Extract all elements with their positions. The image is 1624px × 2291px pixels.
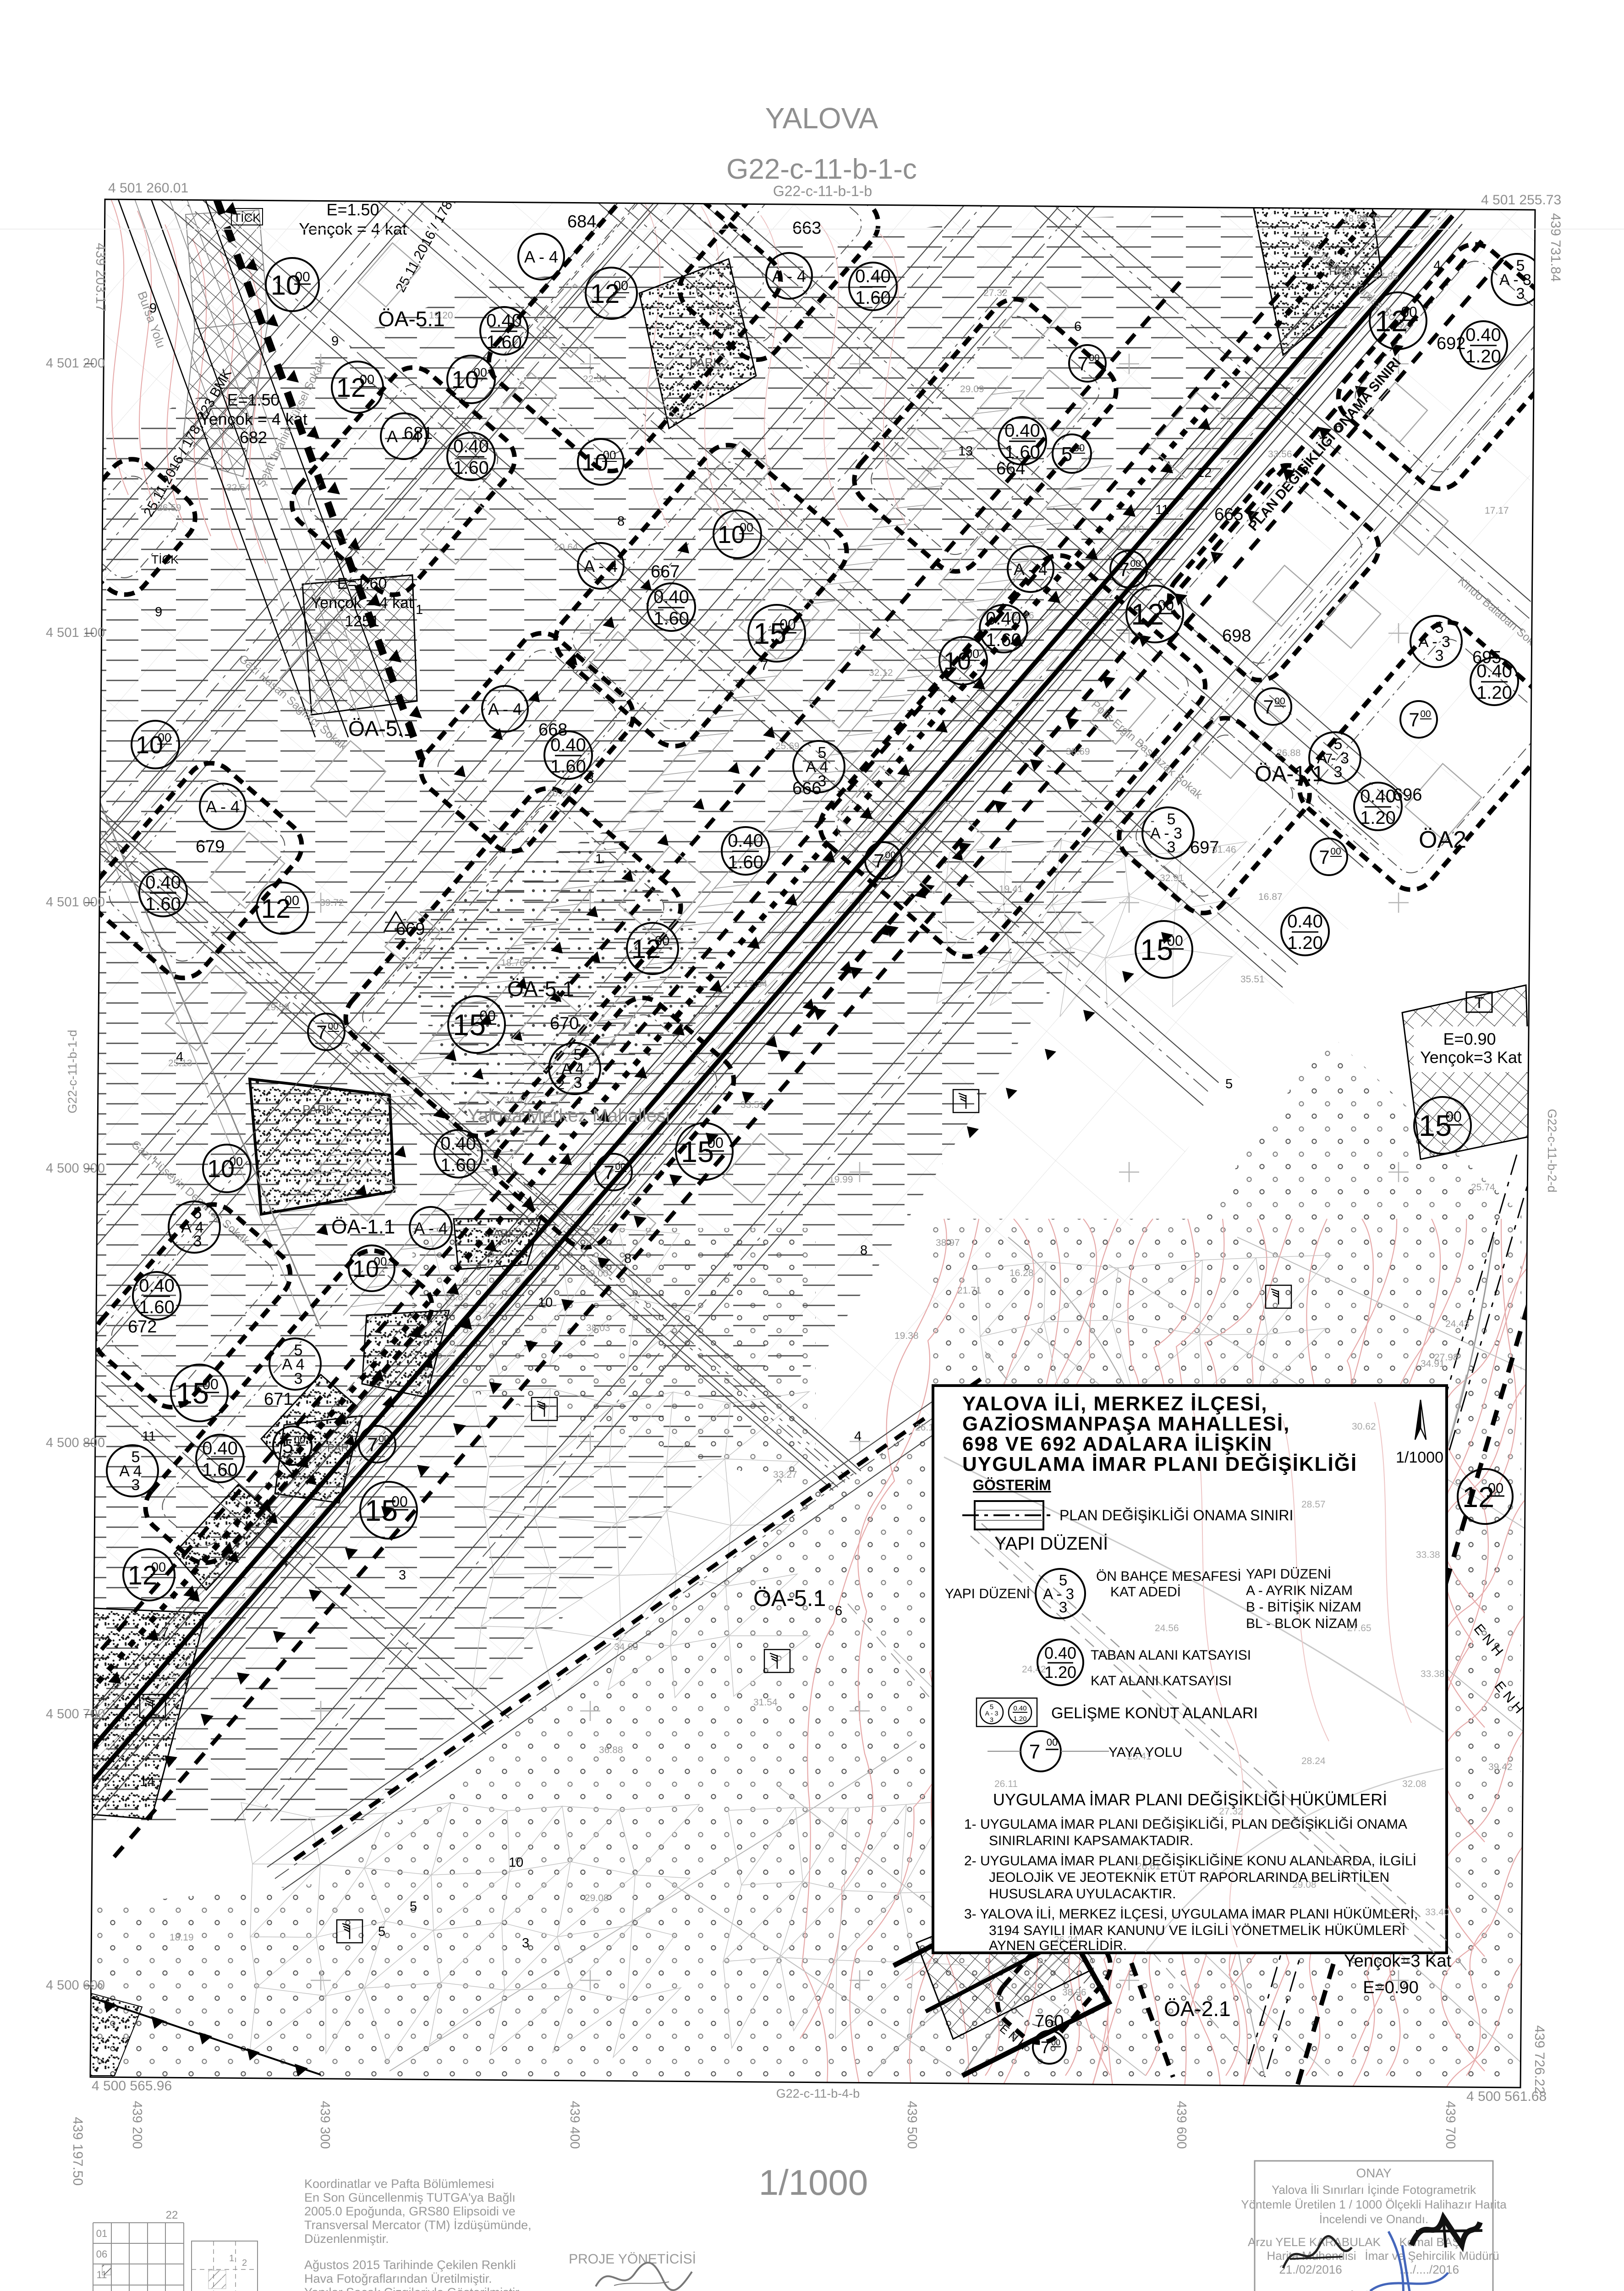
svg-text:3: 3 — [818, 773, 827, 790]
svg-text:00: 00 — [379, 1434, 389, 1444]
svg-text:29.09: 29.09 — [960, 384, 984, 395]
svg-text:21./02/2016: 21./02/2016 — [1279, 2263, 1342, 2276]
svg-text:Ağustos 2015 Tarihinde Çekilen: Ağustos 2015 Tarihinde Çekilen Renkli — [304, 2258, 516, 2272]
svg-text:A - 4: A - 4 — [387, 427, 421, 446]
svg-text:0.40: 0.40 — [145, 872, 181, 893]
svg-text:4 501 260.01: 4 501 260.01 — [108, 181, 188, 196]
svg-text:33.51: 33.51 — [741, 1100, 765, 1110]
svg-text:3: 3 — [1435, 647, 1444, 664]
svg-text:14: 14 — [140, 1775, 154, 1789]
svg-text:12: 12 — [1197, 466, 1212, 480]
svg-text:KAT ADEDİ: KAT ADEDİ — [1110, 1584, 1181, 1600]
svg-text:A - 4: A - 4 — [488, 700, 522, 718]
svg-text:YALOVA: YALOVA — [765, 102, 878, 135]
svg-text:ÖA-2.1: ÖA-2.1 — [1164, 1997, 1231, 2021]
svg-text:679: 679 — [196, 837, 225, 856]
svg-text:439 300: 439 300 — [318, 2101, 332, 2149]
svg-text:0.40: 0.40 — [1476, 661, 1512, 681]
svg-text:T: T — [1475, 994, 1484, 1012]
svg-text:A - 4: A - 4 — [206, 797, 240, 816]
svg-text:İmar ve Şehircilik Müdürü: İmar ve Şehircilik Müdürü — [1365, 2249, 1499, 2263]
svg-text:PARK: PARK — [302, 1102, 335, 1116]
svg-text:11: 11 — [142, 1429, 156, 1444]
svg-text:1.60: 1.60 — [202, 1460, 238, 1480]
svg-text:32.91: 32.91 — [1160, 873, 1184, 883]
svg-text:33.38: 33.38 — [1416, 1550, 1440, 1560]
svg-text:00: 00 — [1167, 932, 1183, 949]
svg-text:34.73: 34.73 — [1120, 524, 1144, 535]
svg-text:3: 3 — [294, 1370, 303, 1387]
svg-text:4 500 565.96: 4 500 565.96 — [92, 2078, 172, 2094]
svg-text:00: 00 — [479, 1008, 496, 1024]
svg-text:1.60: 1.60 — [1004, 442, 1040, 462]
svg-text:Yençok = 4 kat: Yençok = 4 kat — [199, 410, 307, 428]
svg-text:38.69: 38.69 — [1066, 746, 1090, 757]
svg-text:YAPI DÜZENİ: YAPI DÜZENİ — [1246, 1567, 1331, 1582]
svg-text:16.87: 16.87 — [1258, 892, 1283, 902]
svg-text:5: 5 — [1061, 443, 1072, 466]
svg-text:439 203.17: 439 203.17 — [93, 243, 108, 312]
svg-text:6: 6 — [1074, 319, 1081, 334]
svg-text:10: 10 — [509, 1855, 523, 1870]
svg-text:20.64: 20.64 — [554, 542, 578, 553]
svg-text:3: 3 — [399, 1568, 406, 1583]
svg-text:Yöntemle Üretilen 1 / 1000 Öl: Yöntemle Üretilen 1 / 1000 Ölçekli Halih… — [1241, 2198, 1507, 2211]
svg-text:663: 663 — [792, 219, 821, 238]
svg-text:7: 7 — [604, 1162, 614, 1183]
svg-text:1.20: 1.20 — [1044, 1663, 1076, 1682]
svg-text:HUSUSLARA UYULACAKTIR.: HUSUSLARA UYULACAKTIR. — [989, 1886, 1176, 1902]
svg-text:00: 00 — [374, 1255, 387, 1268]
svg-text:YAPI DÜZENİ: YAPI DÜZENİ — [994, 1533, 1108, 1554]
svg-text:1251: 1251 — [345, 613, 379, 630]
svg-text:G22-c-11-b-1-d: G22-c-11-b-1-d — [66, 1030, 79, 1113]
svg-text:19.41: 19.41 — [999, 884, 1023, 894]
svg-text:9: 9 — [149, 301, 157, 316]
svg-text:PROJE YÖNETİCİSİ: PROJE YÖNETİCİSİ — [569, 2252, 696, 2267]
svg-text:696: 696 — [1393, 785, 1422, 805]
svg-text:Yençok=3 Kat: Yençok=3 Kat — [1420, 1048, 1522, 1067]
svg-text:00: 00 — [603, 448, 616, 462]
svg-text:7: 7 — [316, 1021, 327, 1043]
svg-text:0.40: 0.40 — [1287, 911, 1323, 932]
svg-text:669: 669 — [396, 920, 425, 939]
svg-text:00: 00 — [1401, 304, 1417, 320]
svg-text:1.60: 1.60 — [145, 894, 181, 914]
svg-text:00: 00 — [1074, 442, 1085, 454]
svg-text:24.56: 24.56 — [1155, 1623, 1179, 1633]
svg-text:27.85: 27.85 — [1374, 271, 1399, 282]
svg-text:3: 3 — [1334, 763, 1343, 781]
svg-text:24.42: 24.42 — [1022, 1664, 1046, 1675]
svg-text:A - 3: A - 3 — [1499, 271, 1531, 289]
svg-text:B - BİTİŞİK NİZAM: B - BİTİŞİK NİZAM — [1246, 1600, 1361, 1615]
svg-text:A - AYRIK NİZAM: A - AYRIK NİZAM — [1246, 1583, 1353, 1598]
svg-text:BL - BLOK NİZAM: BL - BLOK NİZAM — [1246, 1616, 1358, 1631]
svg-text:26.11: 26.11 — [994, 1779, 1018, 1789]
svg-text:38.03: 38.03 — [586, 1323, 610, 1333]
svg-text:39.72: 39.72 — [320, 898, 344, 908]
svg-text:8: 8 — [617, 514, 625, 529]
svg-text:6: 6 — [1335, 420, 1342, 435]
svg-text:00: 00 — [966, 647, 979, 661]
svg-text:671: 671 — [264, 1390, 293, 1409]
svg-text:670: 670 — [550, 1014, 579, 1033]
svg-text:665: 665 — [1214, 505, 1243, 524]
svg-text:ÖA-1.1: ÖA-1.1 — [331, 1216, 395, 1238]
svg-text:4 500 800: 4 500 800 — [46, 1436, 105, 1450]
svg-text:00: 00 — [615, 1162, 625, 1172]
svg-text:26.59: 26.59 — [157, 503, 181, 513]
svg-text:16.28: 16.28 — [1010, 1268, 1034, 1278]
svg-text:00: 00 — [885, 850, 895, 860]
svg-text:Yapılar Saçak Çizgileriyle Gös: Yapılar Saçak Çizgileriyle Gösterilmişti… — [304, 2286, 522, 2291]
svg-text:00: 00 — [1330, 846, 1341, 857]
svg-text:3: 3 — [132, 1476, 140, 1494]
svg-text:0.40: 0.40 — [1465, 325, 1501, 345]
svg-text:439 500: 439 500 — [905, 2101, 919, 2149]
svg-text:4 501 100: 4 501 100 — [46, 625, 105, 640]
svg-text:18.19: 18.19 — [170, 1932, 194, 1943]
svg-text:1/1000: 1/1000 — [1396, 1449, 1443, 1466]
svg-text:0.40: 0.40 — [139, 1276, 175, 1296]
svg-text:GÖSTERİM: GÖSTERİM — [973, 1477, 1051, 1493]
svg-text:19.58: 19.58 — [265, 1002, 290, 1013]
svg-text:7: 7 — [873, 850, 884, 871]
svg-text:1/1000: 1/1000 — [759, 2162, 868, 2203]
svg-text:..../..../2016: ..../..../2016 — [1399, 2263, 1459, 2276]
svg-text:1: 1 — [416, 603, 423, 617]
svg-text:G22-c-11-b-2-d: G22-c-11-b-2-d — [1545, 1109, 1559, 1193]
svg-text:33.56: 33.56 — [1268, 449, 1292, 460]
svg-text:39.00: 39.00 — [584, 1268, 609, 1279]
svg-text:32.54: 32.54 — [226, 482, 251, 493]
svg-text:Yalova Merkez Mahallesi: Yalova Merkez Mahallesi — [467, 1106, 670, 1126]
svg-text:8: 8 — [624, 1251, 631, 1266]
svg-text:24.43: 24.43 — [1445, 1319, 1470, 1329]
svg-text:9: 9 — [155, 605, 162, 619]
svg-text:439 200: 439 200 — [130, 2101, 144, 2149]
svg-text:22: 22 — [166, 2209, 178, 2221]
svg-text:19.38: 19.38 — [894, 1331, 919, 1341]
svg-text:28.24: 28.24 — [1301, 1756, 1326, 1766]
svg-text:6: 6 — [835, 1604, 842, 1618]
svg-text:7: 7 — [1041, 2038, 1050, 2057]
svg-text:0.40: 0.40 — [855, 266, 891, 286]
svg-text:34.60: 34.60 — [614, 1642, 638, 1652]
svg-text:JEOLOJİK VE JEOTEKNİK ET: JEOLOJİK VE JEOTEKNİK ETÜT RAPORLARINDA … — [989, 1870, 1389, 1885]
svg-text:C: C — [125, 2288, 134, 2291]
svg-text:18.59: 18.59 — [1343, 214, 1367, 224]
svg-text:ONAY: ONAY — [1356, 2166, 1392, 2180]
svg-text:Yençok = 4 kat: Yençok = 4 kat — [311, 594, 413, 612]
svg-text:00: 00 — [360, 373, 374, 387]
svg-text:1: 1 — [229, 2253, 234, 2264]
svg-text:0.40: 0.40 — [550, 735, 586, 755]
svg-text:7: 7 — [367, 1434, 378, 1455]
svg-text:En Son Güncellenmiş TUTGA'ya B: En Son Güncellenmiş TUTGA'ya Bağlı — [304, 2191, 516, 2204]
svg-text:00: 00 — [1130, 559, 1141, 569]
svg-text:31.46: 31.46 — [1212, 844, 1236, 855]
svg-text:698 VE 692 ADALARA İLİŞKİN: 698 VE 692 ADALARA İLİŞKİN — [962, 1433, 1273, 1455]
svg-text:30.62: 30.62 — [1352, 1421, 1376, 1432]
svg-text:0.40: 0.40 — [1013, 1705, 1026, 1712]
svg-text:A - 4: A - 4 — [772, 267, 806, 285]
svg-text:4 501 255.73: 4 501 255.73 — [1481, 192, 1561, 208]
svg-text:1.60: 1.60 — [139, 1297, 175, 1317]
svg-text:Transversal Mercator (TM) İzdü: Transversal Mercator (TM) İzdüşümünde, — [304, 2218, 532, 2232]
svg-text:7: 7 — [1319, 846, 1329, 868]
svg-text:35.83: 35.83 — [444, 1292, 469, 1303]
svg-text:1.60: 1.60 — [986, 630, 1021, 650]
svg-text:ÖN BAHÇE MESAFESİ: ÖN BAHÇE MESAFESİ — [1096, 1569, 1241, 1584]
svg-text:3: 3 — [522, 1936, 529, 1951]
svg-text:2: 2 — [242, 2258, 247, 2268]
svg-text:TABAN ALANI KATSAYISI: TABAN ALANI KATSAYISI — [1091, 1648, 1251, 1663]
svg-text:31.54: 31.54 — [753, 1697, 778, 1708]
svg-text:28.57: 28.57 — [1301, 1499, 1326, 1510]
svg-text:1.60: 1.60 — [855, 288, 891, 308]
svg-text:13: 13 — [958, 444, 973, 459]
svg-text:26.88: 26.88 — [1277, 748, 1301, 758]
svg-text:00: 00 — [295, 269, 310, 285]
svg-text:3: 3 — [574, 1074, 582, 1091]
svg-text:00: 00 — [285, 893, 299, 908]
svg-text:00: 00 — [707, 1135, 724, 1151]
svg-text:1.60: 1.60 — [486, 332, 522, 352]
svg-text:00: 00 — [229, 1155, 243, 1168]
svg-text:1.20: 1.20 — [1360, 808, 1396, 828]
svg-text:UYGULAMA İMAR PLANI DEĞİŞİKLİĞ: UYGULAMA İMAR PLANI DEĞİŞİKLİĞİ — [962, 1452, 1357, 1475]
svg-text:A - 3: A - 3 — [1150, 825, 1182, 842]
svg-text:E=0.90: E=0.90 — [1363, 1978, 1419, 1997]
svg-text:4: 4 — [1433, 258, 1441, 273]
svg-text:5: 5 — [410, 1899, 417, 1914]
svg-text:7: 7 — [1409, 709, 1419, 730]
svg-text:32.12: 32.12 — [869, 668, 893, 678]
svg-text:27.32: 27.32 — [983, 288, 1008, 298]
svg-text:1.60: 1.60 — [728, 852, 763, 872]
svg-text:00: 00 — [391, 1493, 408, 1510]
svg-text:3: 3 — [1516, 285, 1525, 302]
svg-text:Koordinatlar ve Pafta Bölümlem: Koordinatlar ve Pafta Bölümlemesi — [304, 2177, 494, 2191]
svg-text:0.40: 0.40 — [440, 1134, 476, 1154]
svg-text:E=1.50: E=1.50 — [326, 200, 379, 219]
svg-text:00: 00 — [1051, 2038, 1060, 2047]
svg-text:SINIRLARINI KAPSAMAKTADIR.: SINIRLARINI KAPSAMAKTADIR. — [989, 1833, 1193, 1848]
svg-text:00: 00 — [779, 616, 796, 633]
svg-text:0.40: 0.40 — [1360, 786, 1396, 806]
svg-text:1.20: 1.20 — [1287, 933, 1323, 953]
svg-text:00: 00 — [1488, 1480, 1503, 1496]
svg-text:0.40: 0.40 — [728, 831, 763, 851]
svg-text:0.40: 0.40 — [986, 608, 1021, 629]
svg-text:00: 00 — [614, 279, 628, 293]
svg-text:01: 01 — [96, 2228, 107, 2239]
svg-text:5: 5 — [282, 1435, 293, 1458]
svg-text:1: 1 — [595, 852, 603, 866]
svg-text:7: 7 — [161, 1625, 169, 1640]
svg-text:AYNEN GEÇERLİDİR.: AYNEN GEÇERLİDİR. — [989, 1938, 1127, 1953]
svg-text:672: 672 — [128, 1317, 157, 1337]
svg-text:4 500 700: 4 500 700 — [46, 1707, 105, 1721]
svg-text:00: 00 — [1274, 696, 1285, 707]
svg-text:ÖA2: ÖA2 — [1419, 827, 1466, 853]
svg-text:2005.0 Epoğunda, GRS80 Elipsoi: 2005.0 Epoğunda, GRS80 Elipsoidi ve — [304, 2204, 516, 2218]
svg-text:A - 3: A - 3 — [1418, 633, 1450, 651]
svg-text:0.40: 0.40 — [653, 587, 689, 607]
svg-text:GELİŞME KONUT ALANLARI: GELİŞME KONUT ALANLARI — [1051, 1705, 1258, 1722]
svg-text:Arzu YELE KARABULAK: Arzu YELE KARABULAK — [1248, 2235, 1381, 2249]
svg-text:00: 00 — [1420, 709, 1431, 719]
svg-text:0.40: 0.40 — [1044, 1644, 1076, 1662]
svg-text:TİCK: TİCK — [151, 553, 179, 566]
svg-text:00: 00 — [328, 1021, 338, 1032]
svg-text:E=1.60: E=1.60 — [337, 575, 387, 592]
svg-text:Hava Fotoğraflarından Üretilmi: Hava Fotoğraflarından Üretilmiştir. — [304, 2272, 492, 2286]
svg-text:667: 667 — [651, 562, 680, 581]
svg-text:7: 7 — [1029, 1741, 1040, 1763]
svg-text:10: 10 — [538, 1295, 553, 1310]
svg-text:00: 00 — [1158, 597, 1174, 614]
svg-text:0.40: 0.40 — [1004, 421, 1040, 441]
svg-text:00: 00 — [151, 1560, 166, 1575]
svg-text:25.74: 25.74 — [1471, 1182, 1495, 1193]
svg-text:1.20: 1.20 — [1465, 346, 1501, 367]
svg-text:3: 3 — [193, 1233, 202, 1250]
svg-text:06: 06 — [96, 2248, 107, 2260]
svg-text:1.20: 1.20 — [1013, 1715, 1026, 1723]
svg-text:27.98: 27.98 — [1434, 1352, 1459, 1363]
svg-text:18.76: 18.76 — [501, 958, 525, 968]
svg-text:G22-c-11-b-1-b: G22-c-11-b-1-b — [773, 183, 872, 199]
svg-text:1.60: 1.60 — [440, 1155, 476, 1175]
svg-text:A - 3: A - 3 — [1317, 750, 1349, 767]
svg-text:0.40: 0.40 — [486, 311, 522, 331]
svg-text:19.99: 19.99 — [829, 1174, 853, 1185]
svg-text:33.38: 33.38 — [1421, 1669, 1445, 1679]
svg-text:E=0.90: E=0.90 — [1443, 1030, 1496, 1048]
svg-text:Yalova İli Sınırları İçinde F: Yalova İli Sınırları İçinde Fotogrametri… — [1272, 2183, 1476, 2197]
svg-text:Yençok=3 Kat: Yençok=3 Kat — [1344, 1951, 1452, 1971]
svg-text:25.13: 25.13 — [168, 1058, 192, 1069]
svg-text:2- UYGULAMA İMAR PLANI DEĞİ: 2- UYGULAMA İMAR PLANI DEĞİŞİKLİĞİNE KON… — [964, 1853, 1416, 1869]
svg-text:439 726.22: 439 726.22 — [1532, 2025, 1547, 2094]
svg-text:9: 9 — [331, 334, 339, 349]
svg-text:684: 684 — [567, 212, 596, 231]
svg-text:5: 5 — [1225, 1077, 1233, 1091]
svg-text:33.40: 33.40 — [1425, 1907, 1449, 1918]
svg-text:4: 4 — [854, 1429, 861, 1444]
svg-text:439 197.50: 439 197.50 — [70, 2117, 85, 2186]
svg-text:20.26: 20.26 — [547, 788, 571, 799]
svg-text:3: 3 — [1167, 839, 1176, 856]
svg-text:00: 00 — [473, 366, 487, 379]
svg-text:7: 7 — [1119, 559, 1129, 580]
svg-text:760: 760 — [1035, 2012, 1064, 2031]
svg-text:7: 7 — [1263, 696, 1273, 718]
svg-text:1.60: 1.60 — [453, 458, 489, 478]
svg-text:YALOVA İLİ, MERKEZ İLÇESİ,: YALOVA İLİ, MERKEZ İLÇESİ, — [962, 1392, 1267, 1415]
svg-text:A - 4: A - 4 — [1014, 560, 1048, 579]
svg-text:G22-c-11-b-1-c: G22-c-11-b-1-c — [726, 153, 917, 185]
svg-text:E=1.50: E=1.50 — [227, 390, 280, 409]
svg-text:25.69: 25.69 — [775, 741, 800, 751]
svg-text:17.34: 17.34 — [743, 979, 768, 989]
svg-text:G22-c-11-b-4-b: G22-c-11-b-4-b — [776, 2087, 860, 2100]
svg-text:ÖA-5.1: ÖA-5.1 — [507, 977, 574, 1001]
svg-text:38.96: 38.96 — [1062, 1987, 1086, 1998]
svg-text:Düzenlenmiştir.: Düzenlenmiştir. — [304, 2232, 389, 2246]
svg-text:33.27: 33.27 — [773, 1469, 797, 1480]
svg-text:Kemal BAŞ: Kemal BAŞ — [1399, 2235, 1460, 2249]
svg-text:ÖA-5.1: ÖA-5.1 — [348, 717, 415, 740]
svg-text:A - 4: A - 4 — [584, 557, 618, 575]
svg-text:682: 682 — [240, 428, 267, 447]
svg-text:GAZİOSMANPAŞA MAHALLESİ,: GAZİOSMANPAŞA MAHALLESİ, — [962, 1413, 1290, 1435]
svg-text:3: 3 — [1059, 1599, 1067, 1616]
svg-text:22.54: 22.54 — [583, 374, 607, 384]
svg-text:32.08: 32.08 — [1402, 1779, 1426, 1789]
svg-text:00: 00 — [1089, 353, 1099, 363]
svg-text:TİCK: TİCK — [233, 211, 261, 225]
svg-text:39.42: 39.42 — [1488, 1762, 1513, 1772]
svg-text:439 400: 439 400 — [567, 2101, 582, 2149]
svg-text:5: 5 — [378, 1924, 385, 1939]
svg-text:17.17: 17.17 — [1485, 505, 1509, 516]
svg-text:3: 3 — [587, 772, 594, 786]
svg-text:00: 00 — [740, 521, 753, 534]
svg-text:34.47: 34.47 — [504, 1095, 528, 1106]
svg-text:4 500 600: 4 500 600 — [46, 1978, 105, 1993]
svg-text:3194 SAYILI İMAR KANUNU VE: 3194 SAYILI İMAR KANUNU VE İLGİLİ YÖNETM… — [989, 1923, 1405, 1938]
svg-text:38.97: 38.97 — [936, 1238, 960, 1248]
svg-text:439 600: 439 600 — [1174, 2101, 1189, 2149]
svg-text:4 500 900: 4 500 900 — [46, 1161, 105, 1176]
svg-text:A - 4: A - 4 — [414, 1219, 448, 1238]
svg-text:A - 4: A - 4 — [524, 247, 558, 266]
svg-text:1.60: 1.60 — [653, 608, 689, 629]
svg-text:3- YALOVA İLİ, MERKEZ İLÇES: 3- YALOVA İLİ, MERKEZ İLÇESİ, UYGULAMA İ… — [964, 1907, 1418, 1922]
svg-text:00: 00 — [1047, 1737, 1058, 1748]
svg-text:3: 3 — [990, 1716, 993, 1723]
svg-text:1.20: 1.20 — [1476, 683, 1512, 703]
svg-text:1.60: 1.60 — [550, 756, 586, 777]
svg-text:00: 00 — [158, 731, 171, 745]
svg-text:36.88: 36.88 — [599, 1745, 623, 1755]
svg-text:00: 00 — [655, 934, 669, 948]
svg-text:0.40: 0.40 — [202, 1438, 238, 1458]
svg-text:698: 698 — [1222, 626, 1251, 646]
svg-text:439 700: 439 700 — [1443, 2101, 1458, 2149]
svg-text:4 501 200: 4 501 200 — [46, 356, 105, 371]
svg-text:1- UYGULAMA İMAR PLANI DEĞİ: 1- UYGULAMA İMAR PLANI DEĞİŞİKLİĞİ, PLAN… — [964, 1817, 1407, 1832]
svg-text:21.71: 21.71 — [957, 1285, 982, 1296]
svg-text:439 731.84: 439 731.84 — [1548, 213, 1563, 282]
svg-text:00: 00 — [294, 1434, 305, 1446]
svg-text:4: 4 — [281, 1555, 288, 1570]
svg-text:11: 11 — [1155, 503, 1169, 517]
svg-text:UYGULAMA İMAR PLANI DEĞİŞİKLİĞ: UYGULAMA İMAR PLANI DEĞİŞİKLİĞİ HÜKÜMLER… — [993, 1790, 1387, 1809]
svg-text:KAT ALANI KATSAYISI: KAT ALANI KATSAYISI — [1091, 1673, 1232, 1688]
svg-text:00: 00 — [202, 1376, 219, 1392]
svg-text:7: 7 — [1077, 353, 1088, 374]
svg-text:İncelendi ve Onandı.: İncelendi ve Onandı. — [1319, 2212, 1429, 2226]
svg-text:00: 00 — [1445, 1108, 1462, 1125]
svg-text:YAPI DÜZENİ: YAPI DÜZENİ — [945, 1586, 1030, 1601]
svg-text:29.08: 29.08 — [585, 1893, 609, 1903]
svg-text:19.20: 19.20 — [429, 310, 453, 321]
